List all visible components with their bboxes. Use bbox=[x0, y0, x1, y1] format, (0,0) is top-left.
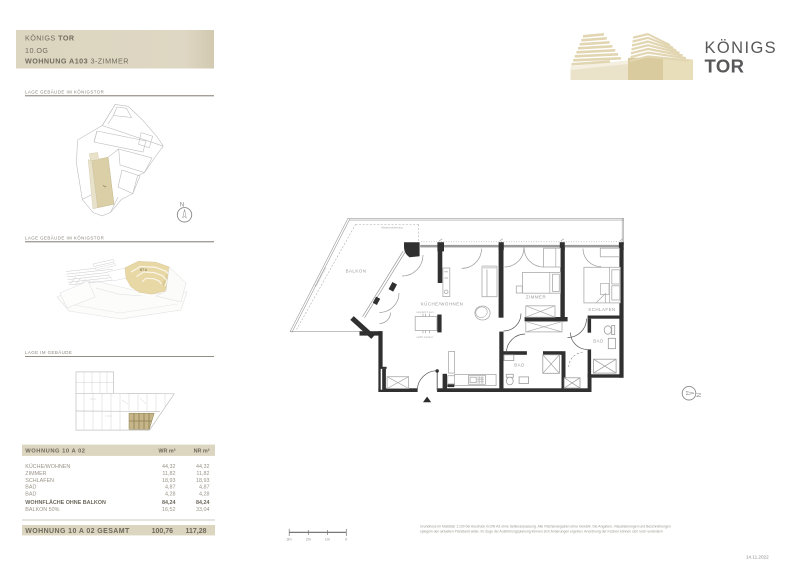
svg-text:BAD: BAD bbox=[25, 485, 36, 491]
svg-text:ZIMMER: ZIMMER bbox=[25, 471, 46, 477]
svg-text:3m: 3m bbox=[287, 538, 292, 542]
svg-text:BALKON 50%: BALKON 50% bbox=[25, 507, 59, 513]
svg-text:WR m²: WR m² bbox=[158, 449, 175, 455]
svg-text:BAD: BAD bbox=[25, 491, 36, 497]
svg-text:KÖNIGS TOR: KÖNIGS TOR bbox=[25, 33, 75, 42]
svg-text:4,87: 4,87 bbox=[165, 485, 176, 491]
svg-text:LAGE GEBÄUDE IM KÖNIGSTOR: LAGE GEBÄUDE IM KÖNIGSTOR bbox=[25, 235, 104, 240]
svg-text:14.11.2022: 14.11.2022 bbox=[746, 555, 769, 560]
svg-text:TOR: TOR bbox=[705, 56, 745, 77]
svg-text:2m: 2m bbox=[306, 538, 311, 542]
svg-text:essplatz 6 pers.: essplatz 6 pers. bbox=[416, 310, 434, 314]
svg-text:N: N bbox=[695, 393, 701, 397]
svg-text:BAD: BAD bbox=[593, 339, 604, 344]
svg-text:16,52: 16,52 bbox=[162, 507, 176, 513]
svg-text:WOHNUNG 10 A 02: WOHNUNG 10 A 02 bbox=[25, 449, 85, 455]
svg-text:LAGE GEBÄUDE IM KÖNIGSTOR: LAGE GEBÄUDE IM KÖNIGSTOR bbox=[25, 89, 104, 94]
svg-text:BAD: BAD bbox=[514, 363, 525, 368]
svg-text:spiegeln den aktuellen Plan: spiegeln den aktuellen Planstand wider. … bbox=[420, 529, 663, 533]
svg-text:KÖNIGS: KÖNIGS bbox=[705, 39, 778, 57]
svg-text:4,28: 4,28 bbox=[165, 491, 176, 497]
svg-text:ZIMMER: ZIMMER bbox=[526, 295, 546, 300]
svg-text:0: 0 bbox=[345, 538, 347, 542]
svg-text:44,32: 44,32 bbox=[162, 464, 176, 470]
svg-text:KÜCHE/WOHNEN: KÜCHE/WOHNEN bbox=[25, 463, 70, 470]
svg-text:stellfl. kredenz: stellfl. kredenz bbox=[416, 335, 433, 339]
svg-text:LAGE IM GEBÄUDE: LAGE IM GEBÄUDE bbox=[25, 350, 72, 355]
svg-text:WOHNFLÄCHE OHNE BALKON: WOHNFLÄCHE OHNE BALKON bbox=[25, 499, 106, 506]
svg-text:WOHNUNG 10 A 02 GESAMT: WOHNUNG 10 A 02 GESAMT bbox=[25, 528, 130, 535]
svg-text:SCHLAFEN: SCHLAFEN bbox=[25, 478, 54, 484]
svg-text:Absturzsicherung: Absturzsicherung bbox=[381, 225, 403, 229]
svg-text:NR m²: NR m² bbox=[194, 449, 210, 455]
svg-text:4,28: 4,28 bbox=[199, 491, 210, 497]
svg-text:84,24: 84,24 bbox=[162, 500, 176, 506]
svg-text:BALKON: BALKON bbox=[346, 268, 367, 273]
svg-text:KÜCHE/WOHNEN: KÜCHE/WOHNEN bbox=[421, 302, 464, 307]
svg-text:11,82: 11,82 bbox=[162, 471, 175, 477]
svg-text:11,82: 11,82 bbox=[196, 471, 209, 477]
svg-text:SCHLAFEN: SCHLAFEN bbox=[588, 307, 615, 312]
svg-text:33,04: 33,04 bbox=[196, 507, 210, 513]
svg-text:1m: 1m bbox=[325, 538, 330, 542]
svg-text:44,32: 44,32 bbox=[196, 464, 210, 470]
svg-text:84,24: 84,24 bbox=[196, 500, 210, 506]
svg-text:18,93: 18,93 bbox=[162, 478, 176, 484]
svg-text:Grundrisse im Maßstab 1:100 be: Grundrisse im Maßstab 1:100 bei Ausdruck… bbox=[420, 525, 671, 529]
svg-text:4,87: 4,87 bbox=[199, 485, 210, 491]
svg-text:Absturzsicherung: Absturzsicherung bbox=[313, 266, 327, 287]
svg-text:117,28: 117,28 bbox=[185, 528, 206, 535]
svg-text:BT A: BT A bbox=[140, 268, 148, 272]
svg-text:100,76: 100,76 bbox=[152, 528, 174, 535]
svg-text:WOHNUNG A103 3-ZIMMER: WOHNUNG A103 3-ZIMMER bbox=[25, 56, 129, 65]
svg-text:18,93: 18,93 bbox=[196, 478, 210, 484]
svg-text:10.OG: 10.OG bbox=[25, 46, 48, 55]
